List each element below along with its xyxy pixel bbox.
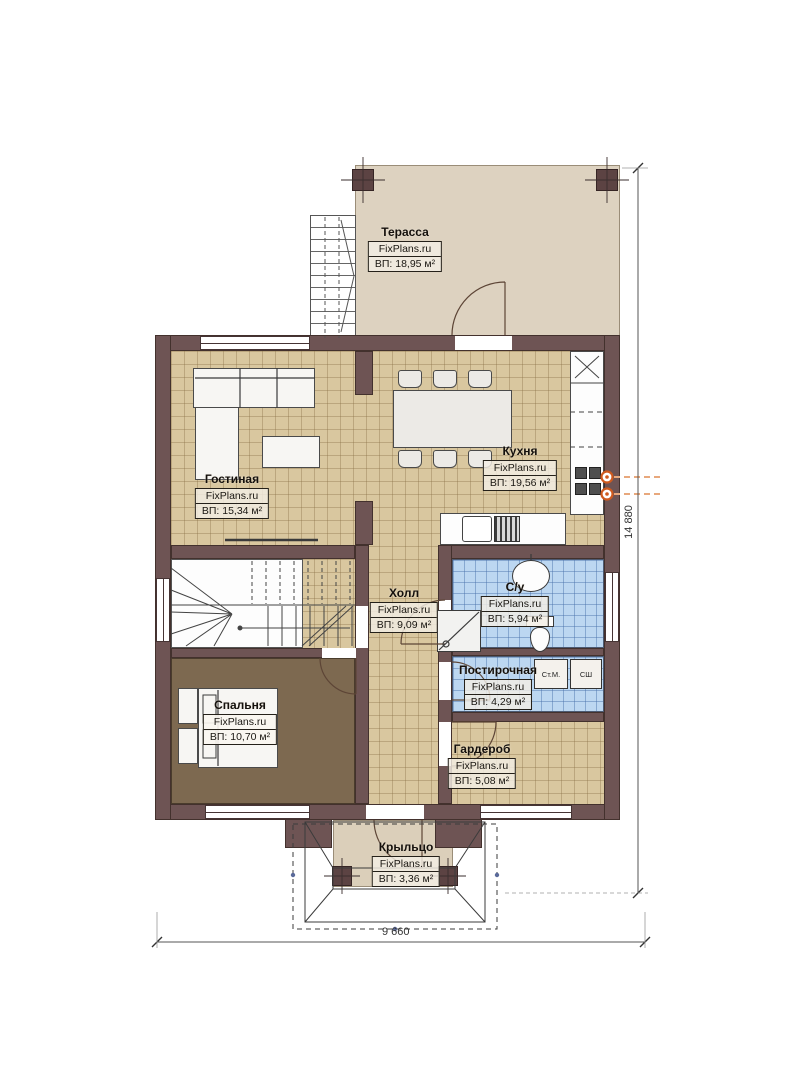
floor-plan-canvas: Ст.М. СШ — [0, 0, 792, 1080]
dining-table — [393, 390, 512, 448]
wall-hall-left — [355, 545, 369, 804]
dryer: СШ — [570, 659, 602, 689]
porch-wall-stub-left — [285, 818, 332, 848]
room-label-bathroom: С/у FixPlans.ru ВП: 5,94 м² — [481, 580, 549, 627]
kitchen-sink — [462, 516, 492, 542]
coffee-table — [262, 436, 320, 468]
terrace-post-right — [596, 169, 618, 191]
stair-zone — [171, 559, 303, 648]
sofa-back — [193, 368, 315, 408]
watermark: FixPlans.ru — [484, 461, 556, 476]
porch-wall-stub-right — [435, 818, 482, 848]
watermark: FixPlans.ru — [369, 242, 441, 257]
watermark: FixPlans.ru — [373, 857, 439, 872]
watermark: FixPlans.ru — [196, 489, 268, 504]
room-name: Гостиная — [195, 472, 269, 486]
hob-burner — [575, 483, 587, 495]
washing-machine: Ст.М. — [534, 659, 568, 689]
hob-burner — [589, 483, 601, 495]
door-gap-laundry — [439, 662, 451, 700]
room-name: Постирочная — [459, 663, 537, 677]
porch-post-right — [438, 866, 458, 886]
watermark: FixPlans.ru — [465, 680, 531, 695]
room-area: ВП: 3,36 м² — [373, 872, 439, 886]
door-gap-bedroom — [322, 648, 356, 658]
room-area: ВП: 15,34 м² — [196, 504, 268, 518]
hob-burner — [589, 467, 601, 479]
watermark: FixPlans.ru — [371, 603, 437, 618]
wall-kitchen-bath — [438, 545, 604, 559]
room-name: С/у — [481, 580, 549, 594]
room-name: Гардероб — [448, 742, 516, 756]
watermark: FixPlans.ru — [482, 597, 548, 612]
door-gap-entry — [366, 805, 424, 819]
dining-chair — [433, 370, 457, 388]
wall-partition-stub-top — [355, 351, 373, 395]
dryer-label: СШ — [580, 670, 592, 679]
door-gap-stairs — [356, 606, 368, 648]
dining-chair — [398, 370, 422, 388]
room-name: Холл — [370, 586, 438, 600]
room-label-laundry: Постирочная FixPlans.ru ВП: 4,29 м² — [459, 663, 537, 710]
room-area: ВП: 4,29 м² — [465, 695, 531, 709]
room-name: Крыльцо — [372, 840, 440, 854]
room-label-kitchen: Кухня FixPlans.ru ВП: 19,56 м² — [483, 444, 557, 491]
dining-chair — [433, 450, 457, 468]
room-area: ВП: 9,09 м² — [371, 618, 437, 632]
room-area: ВП: 19,56 м² — [484, 476, 556, 490]
wall-living-stairs — [171, 545, 355, 559]
wall-laundry-wardrobe — [452, 712, 604, 722]
dining-chair — [398, 450, 422, 468]
room-name: Кухня — [483, 444, 557, 458]
room-name: Терасса — [368, 225, 442, 239]
room-label-terrace: Терасса FixPlans.ru ВП: 18,95 м² — [368, 225, 442, 272]
porch-post-left — [332, 866, 352, 886]
nightstand — [178, 728, 198, 764]
door-gap-terrace — [455, 336, 512, 350]
watermark: FixPlans.ru — [204, 715, 276, 730]
room-area: ВП: 5,08 м² — [449, 774, 515, 788]
room-area: ВП: 18,95 м² — [369, 257, 441, 271]
terrace-steps — [310, 215, 356, 338]
nightstand — [178, 688, 198, 724]
window-bathroom — [605, 572, 619, 642]
room-label-living: Гостиная FixPlans.ru ВП: 15,34 м² — [195, 472, 269, 519]
terrace-post-left — [352, 169, 374, 191]
room-area: ВП: 5,94 м² — [482, 612, 548, 626]
dishwasher — [494, 516, 520, 542]
dimension-width: 9 660 — [382, 926, 410, 938]
washing-machine-label: Ст.М. — [542, 670, 560, 679]
room-area: ВП: 10,70 м² — [204, 730, 276, 744]
window-wardrobe — [480, 805, 572, 819]
room-name: Спальня — [203, 698, 277, 712]
room-label-porch: Крыльцо FixPlans.ru ВП: 3,36 м² — [372, 840, 440, 887]
window-bedroom — [205, 805, 310, 819]
watermark: FixPlans.ru — [449, 759, 515, 774]
window-stairs — [156, 578, 170, 642]
room-label-hall: Холл FixPlans.ru ВП: 9,09 м² — [370, 586, 438, 633]
hob-burner — [575, 467, 587, 479]
wall-partition-stub-bottom — [355, 501, 373, 545]
dimension-depth: 14 880 — [623, 505, 635, 539]
room-label-wardrobe: Гардероб FixPlans.ru ВП: 5,08 м² — [448, 742, 516, 789]
window-living — [200, 336, 310, 350]
shower-tray — [437, 610, 481, 652]
room-label-bedroom: Спальня FixPlans.ru ВП: 10,70 м² — [203, 698, 277, 745]
dining-chair — [468, 370, 492, 388]
